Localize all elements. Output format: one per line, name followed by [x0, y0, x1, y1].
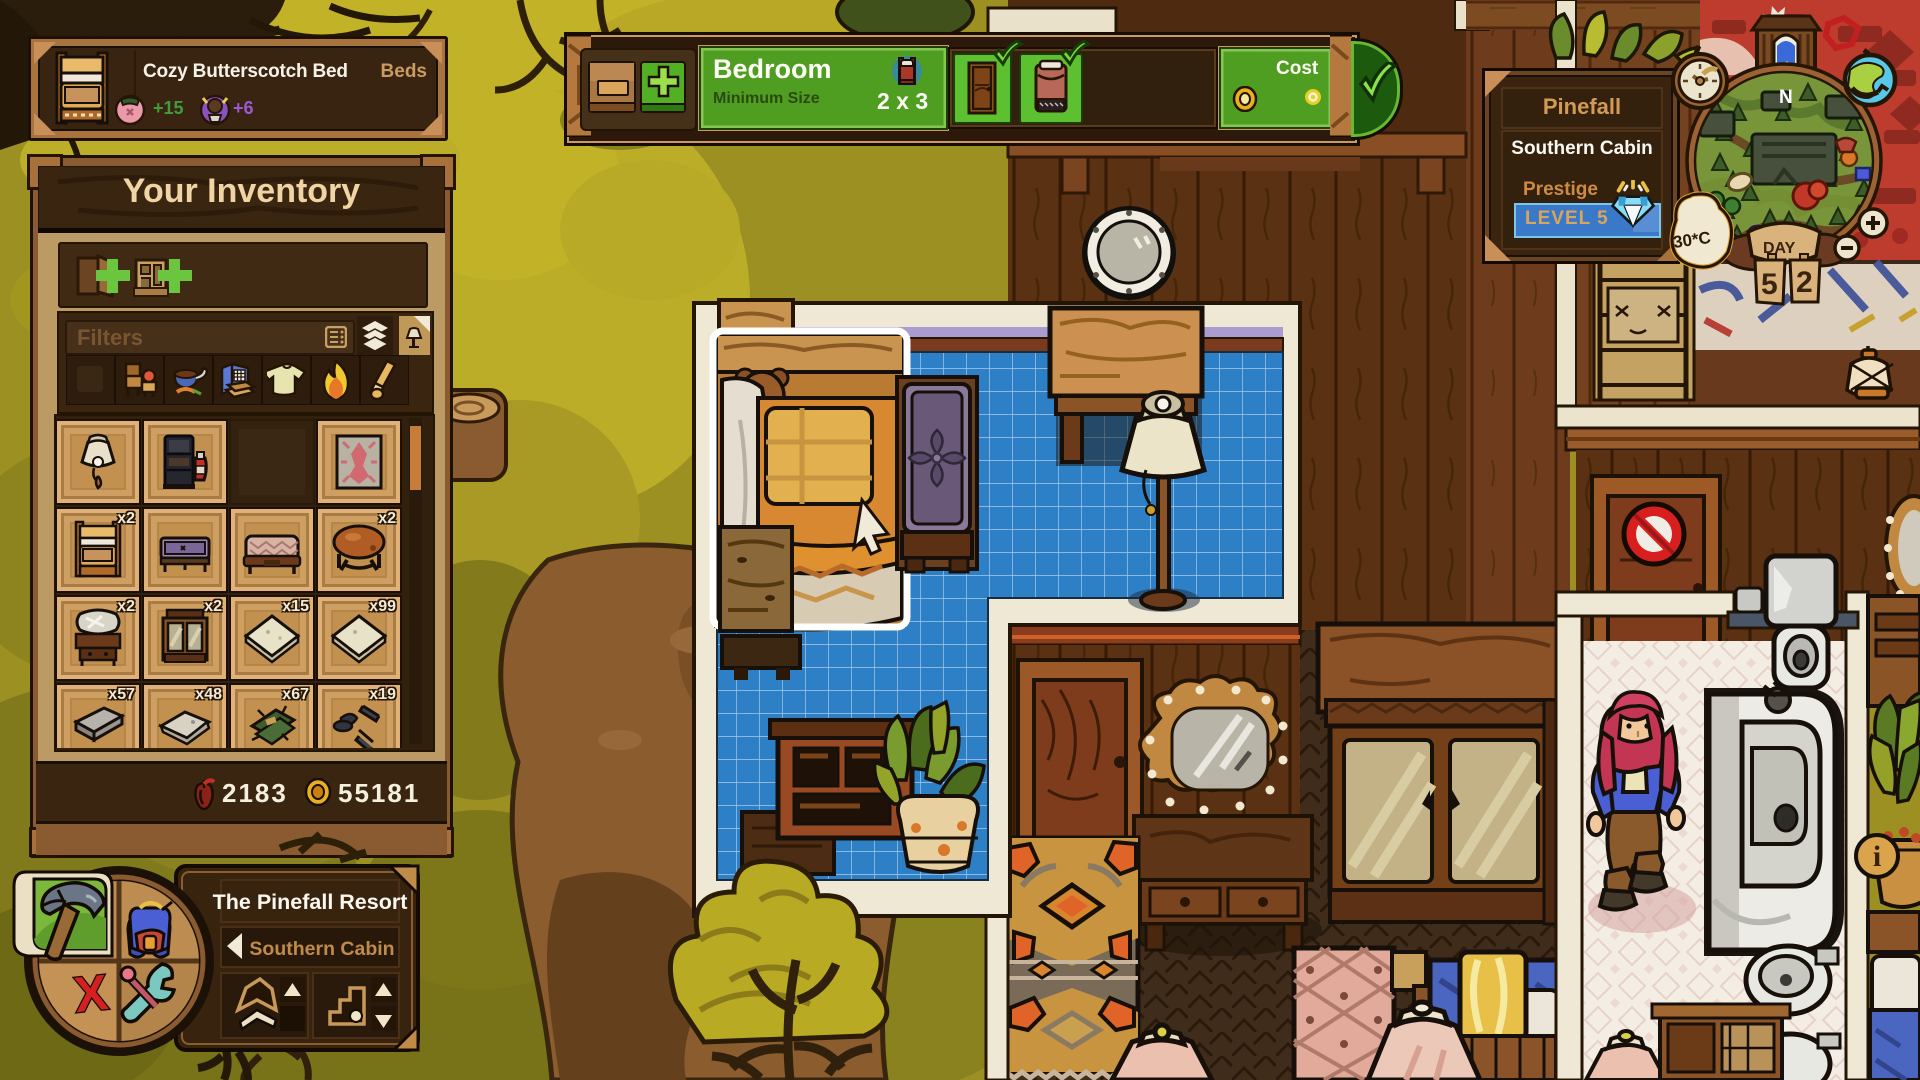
- svg-text:The Pinefall Resort: The Pinefall Resort: [213, 890, 408, 914]
- svg-text:X: X: [72, 964, 111, 1023]
- svg-text:Southern Cabin: Southern Cabin: [249, 938, 394, 960]
- svg-text:i: i: [1873, 840, 1881, 873]
- svg-text:N: N: [1779, 87, 1793, 108]
- svg-text:2: 2: [1796, 266, 1813, 299]
- svg-text:5: 5: [1761, 268, 1778, 301]
